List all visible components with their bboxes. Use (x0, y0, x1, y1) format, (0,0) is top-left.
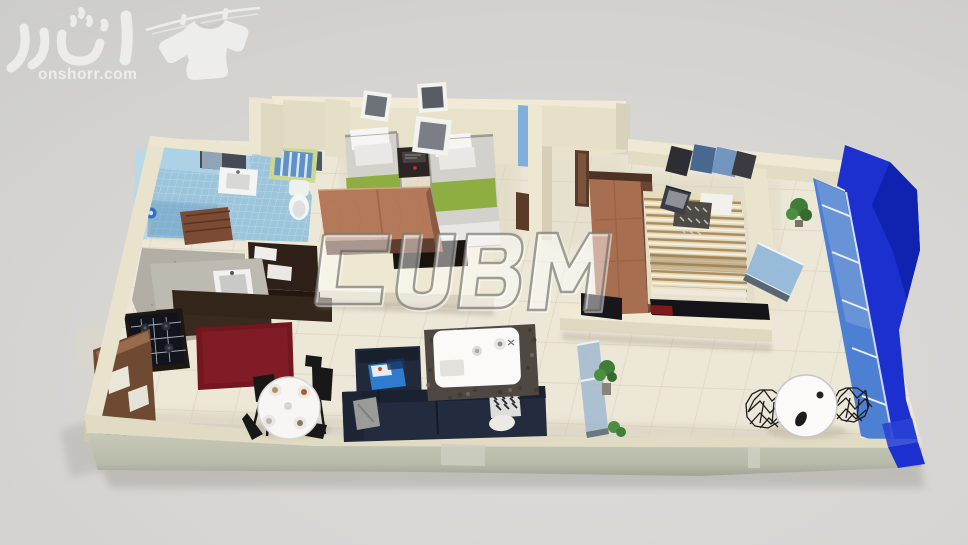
svg-text:onshorr.com: onshorr.com (38, 66, 137, 83)
